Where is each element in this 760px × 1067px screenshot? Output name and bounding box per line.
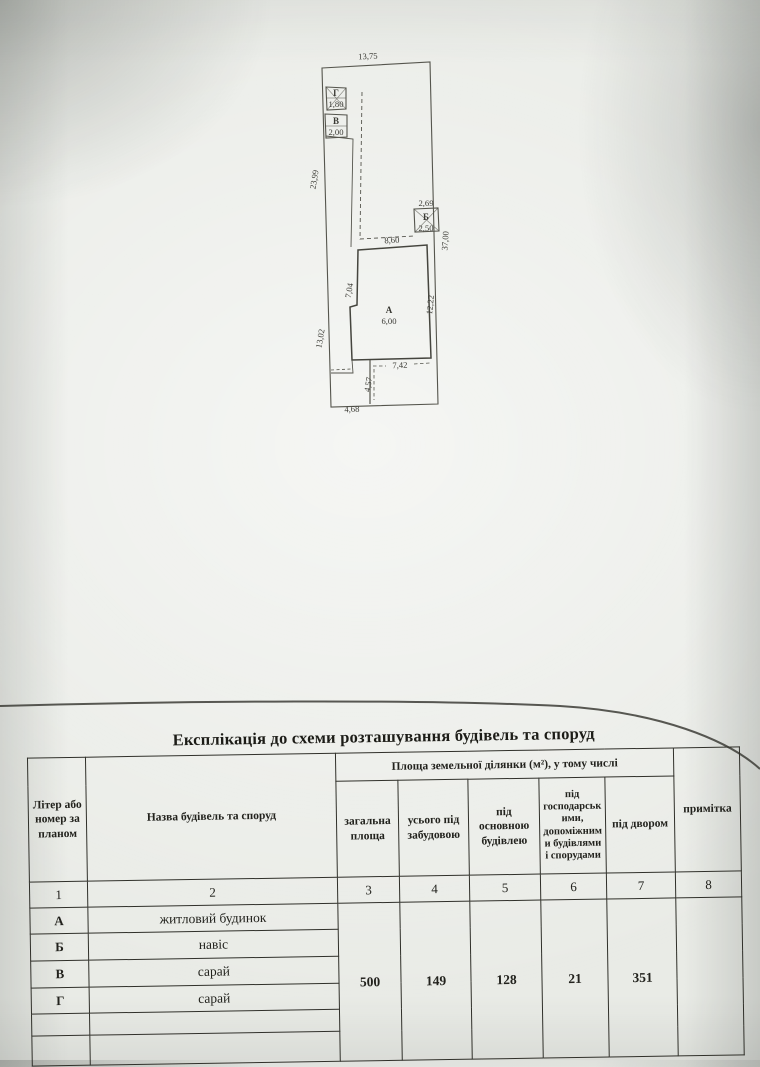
building-v-label: В [333,116,339,126]
dashed-boundary-line [360,92,414,239]
building-a-outline [350,245,431,360]
building-a-right-dim-label: 12,22 [424,295,436,315]
name-cell: житловий будинок [88,903,338,933]
building-g-label: Г [333,88,339,98]
aux-buildings-value: 21 [541,899,609,1058]
yard-value: 351 [607,898,679,1057]
building-v-dim-label: 2,00 [328,127,343,137]
parcel-outline [322,62,438,407]
letter-cell: В [31,960,89,988]
built-total-value: 149 [400,901,472,1060]
dim-top-label: 13,75 [358,51,378,62]
col-number-7: 7 [606,872,675,899]
col-number-3: 3 [337,876,399,903]
dim-right-label: 37,00 [439,231,450,251]
yard-dashed-left [331,369,351,370]
building-g-dim-label: 1,80 [328,99,343,109]
scanned-document-photo: { "colors": { "paper": "#e9ebe6", "plan_… [0,0,760,1060]
letter-cell [32,1035,90,1066]
building-a-bottom-dim-label: 7,42 [392,360,407,371]
building-a-area-label: 6,00 [381,316,396,326]
header-total-area: загальна площа [336,780,400,877]
note-cell [676,897,744,1056]
building-a-left-dim-label: 7,04 [343,282,356,299]
col-number-2: 2 [87,877,337,907]
building-a-label: А [386,305,393,315]
col-number-8: 8 [675,871,741,898]
building-b-depth-label: 2,50 [418,223,433,233]
letter-cell: Б [30,933,88,961]
col-number-5: 5 [469,874,540,901]
inner-fence-line [326,136,353,247]
header-letter: Літер або номер за планом [27,757,87,882]
letter-cell: А [30,907,88,934]
building-b-width-label: 2,69 [418,198,433,208]
yard-step-line [331,360,353,373]
header-name: Назва будівель та споруд [85,753,337,881]
name-cell: сарай [89,983,339,1013]
header-built-total: усього під забудовою [398,779,469,876]
name-cell: сарай [89,956,339,987]
yard-depth-dim-label: 4,57 [362,376,375,393]
total-area-value: 500 [338,902,402,1061]
building-b-label: Б [423,212,429,222]
header-aux-buildings: під господарськими, допоміжними будівлям… [539,777,606,874]
explication-section: Експлікація до схеми розташування будіве… [27,721,746,1066]
explication-table: Літер або номер за планом Назва будівель… [27,746,745,1066]
header-main-building: під основною будівлею [468,778,540,875]
header-note: примітка [673,747,741,872]
col-number-4: 4 [399,875,469,902]
building-a-top-dim-label: 8,60 [384,235,400,246]
letter-cell: Г [31,987,89,1014]
dim-left-lower-label: 13,02 [313,328,326,349]
name-cell [90,1031,340,1065]
dim-bottom-left-label: 4,68 [344,404,360,415]
col-number-6: 6 [540,873,606,900]
letter-cell [31,1013,89,1036]
name-cell: навіс [88,929,338,960]
main-building-value: 128 [470,900,543,1059]
dim-left-upper-label: 23,99 [307,169,320,190]
col-number-1: 1 [29,881,87,908]
header-yard: під двором [605,776,676,873]
